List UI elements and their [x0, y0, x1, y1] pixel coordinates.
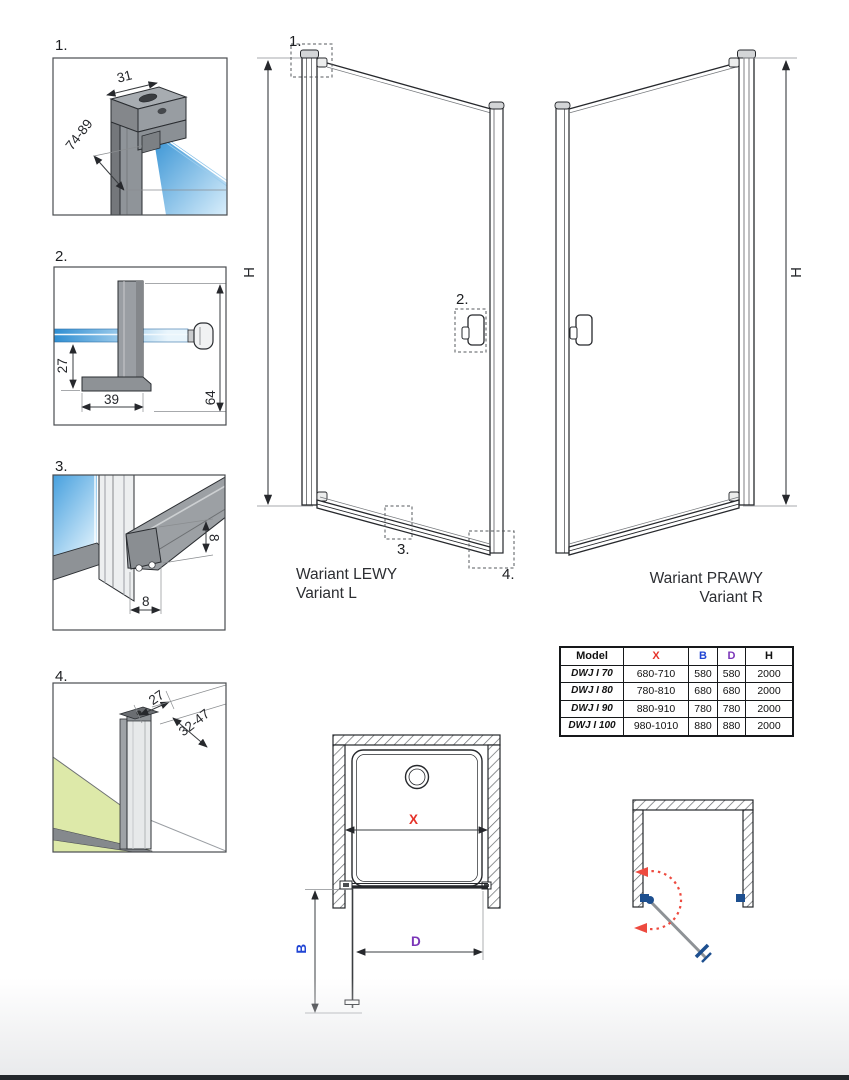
table-header-row: Model X B D H — [560, 647, 793, 665]
line-art — [0, 0, 849, 1080]
table-row: DWJ I 90 880-910 780 780 2000 — [560, 700, 793, 718]
detail-3-label: 3. — [55, 459, 68, 474]
table-row: DWJ I 100 980-1010 880 880 2000 — [560, 718, 793, 736]
variant-left-label-en: Variant L — [296, 584, 397, 603]
table-row: DWJ I 70 680-710 580 580 2000 — [560, 665, 793, 683]
cell-b: 580 — [689, 665, 718, 683]
table-header-x: X — [624, 647, 689, 665]
cell-d: 580 — [718, 665, 746, 683]
elevation-left-drawing — [257, 44, 514, 568]
cell-h: 2000 — [746, 718, 794, 736]
plan-view-drawing — [305, 735, 500, 1013]
cell-model: DWJ I 70 — [560, 665, 624, 683]
cell-h: 2000 — [746, 665, 794, 683]
cell-d: 680 — [718, 683, 746, 701]
cell-h: 2000 — [746, 700, 794, 718]
dimensions-table: Model X B D H DWJ I 70 680-710 580 580 2… — [559, 646, 794, 737]
table-header-model: Model — [560, 647, 624, 665]
detail-3-dim-width: 8 — [142, 595, 150, 609]
detail-2-dim-length: 39 — [104, 393, 119, 407]
detail-2-label: 2. — [55, 249, 68, 264]
plan-dim-x-label: X — [409, 813, 418, 827]
cell-h: 2000 — [746, 683, 794, 701]
detail-3-drawing — [53, 475, 227, 614]
detail-1-label: 1. — [55, 38, 68, 53]
cell-model: DWJ I 100 — [560, 718, 624, 736]
cell-b: 680 — [689, 683, 718, 701]
cell-d: 780 — [718, 700, 746, 718]
page-bottom-bar — [0, 1075, 849, 1080]
variant-right-label: Wariant PRAWY Variant R — [643, 569, 763, 607]
cell-model: DWJ I 80 — [560, 683, 624, 701]
table-row: DWJ I 80 780-810 680 680 2000 — [560, 683, 793, 701]
detail-1-dim-width: 31 — [116, 68, 134, 85]
plan-dim-d-label: D — [411, 935, 421, 949]
elevation-callout-2: 2. — [456, 292, 469, 307]
variant-left-label: Wariant LEWY Variant L — [296, 565, 397, 603]
cell-x: 880-910 — [624, 700, 689, 718]
cell-x: 680-710 — [624, 665, 689, 683]
detail-1-drawing — [94, 83, 227, 215]
elevation-callout-1: 1. — [289, 34, 302, 49]
cell-model: DWJ I 90 — [560, 700, 624, 718]
cell-x: 780-810 — [624, 683, 689, 701]
table-header-b: B — [689, 647, 718, 665]
swing-diagram-drawing — [633, 800, 753, 962]
detail-2-drawing — [54, 281, 226, 412]
page-bottom-fade — [0, 978, 849, 1075]
plan-dim-b-label: B — [295, 944, 309, 954]
detail-2-dim-total: 64 — [204, 390, 218, 405]
cell-d: 880 — [718, 718, 746, 736]
elevation-right-drawing — [555, 50, 797, 555]
variant-right-label-en: Variant R — [643, 588, 763, 607]
detail-4-label: 4. — [55, 669, 68, 684]
table-header-h: H — [746, 647, 794, 665]
elevation-callout-3: 3. — [397, 542, 410, 557]
elevation-callout-4: 4. — [502, 567, 515, 582]
variant-left-label-pl: Wariant LEWY — [296, 565, 397, 584]
technical-drawing-page: 1. 2. 3. 4. 31 74-89 27 39 64 8 8 27 32-… — [0, 0, 849, 1080]
cell-x: 980-1010 — [624, 718, 689, 736]
elevation-left-height-label: H — [242, 267, 257, 278]
elevation-right-height-label: H — [789, 267, 804, 278]
detail-3-dim-height: 8 — [207, 534, 221, 542]
cell-b: 780 — [689, 700, 718, 718]
detail-2-dim-offset: 27 — [56, 358, 70, 373]
cell-b: 880 — [689, 718, 718, 736]
table-header-d: D — [718, 647, 746, 665]
variant-right-label-pl: Wariant PRAWY — [643, 569, 763, 588]
